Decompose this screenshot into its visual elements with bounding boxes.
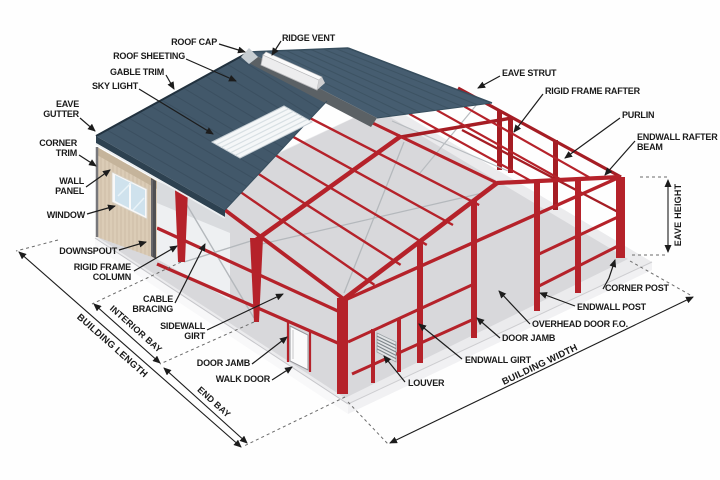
label-downspout: DOWNSPOUT — [59, 246, 117, 256]
label-sidewall-girt: SIDEWALL GIRT — [153, 321, 205, 341]
dimension-eave-height: EAVE HEIGHT — [673, 184, 683, 247]
label-wall-panel: WALL PANEL — [46, 176, 84, 196]
label-roof-sheeting: ROOF SHEETING — [113, 51, 185, 61]
label-window: WINDOW — [47, 210, 85, 220]
label-corner-trim: CORNER TRIM — [31, 138, 77, 158]
label-door-jamb-right: DOOR JAMB — [502, 333, 555, 343]
label-eave-gutter: EAVE GUTTER — [37, 99, 79, 119]
label-door-jamb-left: DOOR JAMB — [197, 358, 250, 368]
label-corner-post: CORNER POST — [605, 283, 669, 293]
label-roof-cap: ROOF CAP — [171, 37, 217, 47]
label-endwall-girt: ENDWALL GIRT — [465, 355, 531, 365]
label-purlin: PURLIN — [622, 110, 654, 120]
label-louver: LOUVER — [408, 378, 444, 388]
label-endwall-post: ENDWALL POST — [577, 302, 646, 312]
label-eave-strut: EAVE STRUT — [502, 68, 556, 78]
diagram-canvas: ROOF CAP RIDGE VENT ROOF SHEETING GABLE … — [0, 0, 720, 480]
label-cable-bracing: CABLE BRACING — [127, 294, 173, 314]
label-sky-light: SKY LIGHT — [92, 81, 138, 91]
label-endwall-rafter-beam: ENDWALL RAFTER BEAM — [637, 132, 719, 152]
label-gable-trim: GABLE TRIM — [110, 67, 164, 77]
label-ridge-vent: RIDGE VENT — [282, 33, 335, 43]
label-rigid-frame-rafter: RIGID FRAME RAFTER — [545, 86, 640, 96]
building-illustration — [0, 0, 720, 480]
label-walk-door: WALK DOOR — [216, 374, 270, 384]
label-rigid-frame-column: RIGID FRAME COLUMN — [65, 262, 131, 282]
label-overhead-door-fo: OVERHEAD DOOR F.O. — [532, 319, 628, 329]
